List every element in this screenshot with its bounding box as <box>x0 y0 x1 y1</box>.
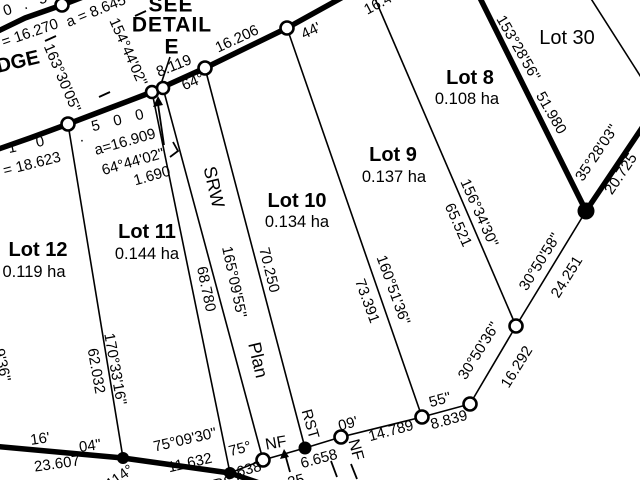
detail-note-line2: DETAIL <box>132 15 212 36</box>
lot9-area: 0.137 ha <box>362 169 426 186</box>
monument-circle <box>510 320 523 333</box>
tick <box>99 92 110 97</box>
leader-bracket <box>170 142 178 157</box>
lot8-area: 0.108 ha <box>435 91 499 108</box>
monument-circle <box>62 118 75 131</box>
lot12-area: 0.119 ha <box>2 264 65 281</box>
lot12-title: Lot 12 <box>9 240 68 260</box>
monument-circle <box>416 411 429 424</box>
lot11-title: Lot 11 <box>118 222 176 242</box>
monument-dot <box>578 203 595 220</box>
tick <box>351 464 357 479</box>
chain-seg8-sec: 04" <box>78 437 102 455</box>
chainage-fragment-dot: . <box>80 130 84 145</box>
lot10-title: Lot 10 <box>268 191 327 211</box>
srw-left-line <box>152 92 230 473</box>
srw-right-line <box>163 88 263 460</box>
monument-circle <box>56 0 69 12</box>
chain-seg8-min: 16' <box>29 430 50 448</box>
lot30-title: Lot 30 <box>539 28 595 48</box>
tick <box>45 36 56 41</box>
lot9-title: Lot 9 <box>369 145 417 165</box>
lot11-area: 0.144 ha <box>115 246 179 263</box>
survey-plan: SEE DETAIL E DGE 0 . 5 a = 8.645 = 16.27… <box>0 0 640 480</box>
lot8-title: Lot 8 <box>446 68 494 88</box>
monument-circle <box>281 22 294 35</box>
lot10-area: 0.134 ha <box>265 214 329 231</box>
monument-circle <box>157 82 169 94</box>
lot30-east-line <box>588 0 640 85</box>
